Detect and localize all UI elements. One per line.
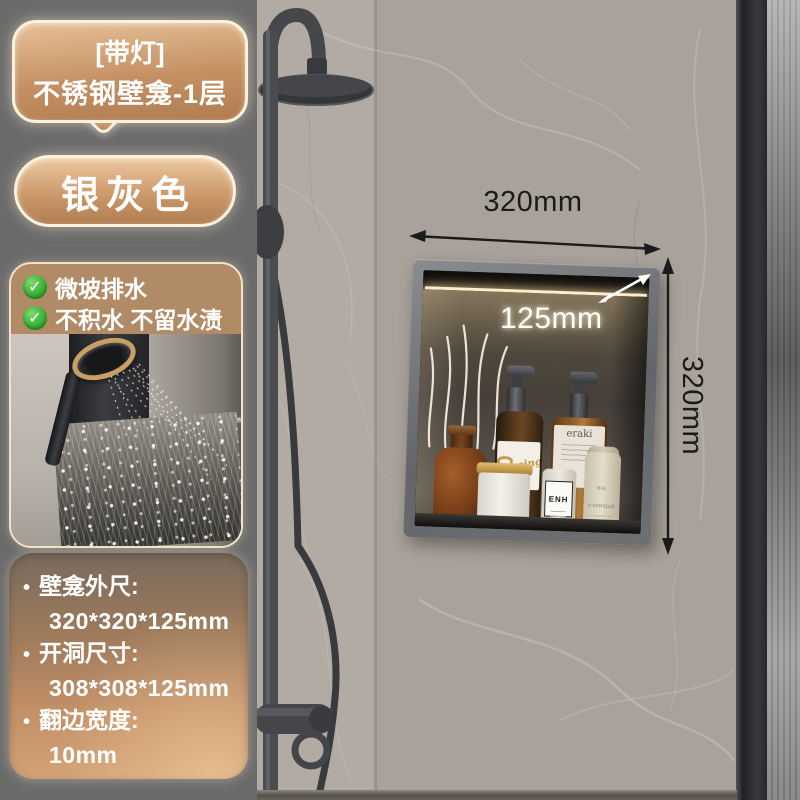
feature-card: ✓ 微坡排水 ✓ 不积水 不留水渍 bbox=[9, 262, 243, 548]
spec-label-text: 壁龛外尺: bbox=[39, 573, 139, 599]
height-dimension-label: 320mm bbox=[675, 356, 708, 476]
bullet-icon: • bbox=[23, 644, 30, 666]
callout-line2: 不锈钢壁龛-1层 bbox=[33, 72, 227, 111]
bullet-icon: • bbox=[23, 577, 30, 599]
wall-edge-dark-strip bbox=[736, 0, 767, 800]
product-image: eraki Morning BAL D'AFRIQUE bbox=[0, 0, 800, 800]
white-bottle-label: ENH bbox=[544, 481, 573, 518]
feature-list: ✓ 微坡排水 ✓ 不积水 不留水渍 bbox=[11, 264, 241, 334]
water-spray bbox=[11, 334, 241, 546]
cream-bottle-label-text: BAL D'AFRIQUE bbox=[588, 485, 615, 509]
bullet-icon: • bbox=[23, 711, 30, 733]
left-info-panel: [带灯] 不锈钢壁龛-1层 银灰色 ✓ 微坡排水 ✓ 不积水 不留水渍 bbox=[0, 0, 257, 800]
feature-label: 微坡排水 bbox=[55, 270, 147, 304]
check-icon: ✓ bbox=[23, 275, 47, 299]
spec-value-text: 320*320*125mm bbox=[23, 605, 248, 638]
spec-item: •壁龛外尺: 320*320*125mm bbox=[23, 570, 248, 637]
spec-value-text: 308*308*125mm bbox=[23, 672, 248, 705]
pump-bottle-collar bbox=[507, 387, 526, 414]
pump-bottle-head bbox=[507, 365, 535, 377]
feature-item: ✓ 不积水 不留水渍 bbox=[23, 302, 241, 333]
check-icon: ✓ bbox=[23, 306, 47, 330]
feature-label: 不积水 不留水渍 bbox=[55, 301, 222, 335]
depth-dimension-label: 125mm bbox=[500, 302, 620, 336]
color-variant-label: 银灰色 bbox=[54, 164, 196, 219]
spec-item: •开洞尺寸: 308*308*125mm bbox=[23, 637, 248, 704]
specs-panel: •壁龛外尺: 320*320*125mm •开洞尺寸: 308*308*125m… bbox=[9, 553, 248, 779]
callout-line1: [带灯] bbox=[95, 33, 164, 70]
spec-value-text: 10mm bbox=[23, 739, 248, 772]
tall-bottle-label-text: eraki bbox=[554, 428, 605, 441]
spec-label-text: 翻边宽度: bbox=[39, 707, 139, 733]
spec-item: •翻边宽度: 10mm bbox=[23, 704, 248, 771]
white-bottle-label-text: ENH bbox=[549, 495, 569, 505]
floor-line bbox=[250, 790, 737, 800]
tall-bottle-collar bbox=[569, 393, 588, 420]
diffuser-cap bbox=[448, 425, 476, 435]
drainage-demo-photo bbox=[11, 334, 241, 546]
width-dimension-label: 320mm bbox=[468, 186, 598, 219]
fluted-panel bbox=[767, 0, 800, 800]
product-title-callout: [带灯] 不锈钢壁龛-1层 bbox=[12, 20, 248, 123]
feature-item: ✓ 微坡排水 bbox=[23, 271, 241, 302]
color-variant-badge: 银灰色 bbox=[14, 155, 236, 227]
tall-bottle-pump-head bbox=[570, 371, 598, 383]
spec-label-text: 开洞尺寸: bbox=[39, 640, 139, 666]
